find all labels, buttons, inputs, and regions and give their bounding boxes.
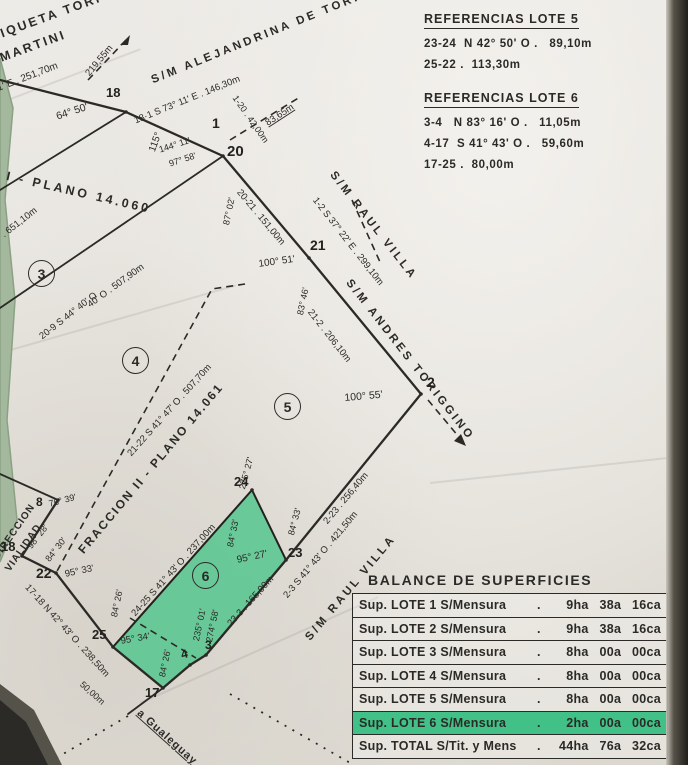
- row-value: 8ha 00a 00ca: [551, 669, 661, 683]
- balance-title: BALANCE DE SUPERFICIES: [368, 572, 668, 588]
- reference-row: 17-25 . 80,00m: [424, 159, 674, 171]
- table-row-total: Sup. TOTAL S/Tit. y Mens.44ha 76a 32ca: [353, 735, 667, 758]
- lot3-number: 3: [28, 260, 55, 287]
- lot6-number: 6: [192, 562, 219, 589]
- lot4-number-text: 4: [132, 353, 140, 369]
- row-value: 9ha 38a 16ca: [551, 622, 661, 636]
- reference-row: 23-24 N 42° 50' O . 89,10m: [424, 38, 674, 50]
- point-25: 25: [92, 628, 106, 641]
- row-dot: .: [537, 692, 551, 706]
- photo-edge-shadow: [666, 0, 688, 765]
- point-23: 23: [288, 546, 302, 559]
- references-lote6-title: REFERENCIAS LOTE 6: [424, 91, 579, 108]
- reference-row: 4-17 S 41° 43' O . 59,60m: [424, 138, 674, 150]
- row-dot: .: [537, 716, 551, 730]
- point-20: 20: [227, 144, 244, 159]
- reference-row: 3-4 N 83° 16' O . 11,05m: [424, 117, 674, 129]
- row-label: Sup. LOTE 2 S/Mensura: [359, 622, 537, 636]
- lot4-number: 4: [122, 347, 149, 374]
- row-dot: .: [537, 622, 551, 636]
- point-17: 17: [145, 686, 159, 699]
- table-row-lote6-highlighted: Sup. LOTE 6 S/Mensura.2ha 00a 00ca: [353, 712, 667, 736]
- row-value: 8ha 00a 00ca: [551, 692, 661, 706]
- lot3-number-text: 3: [38, 266, 46, 282]
- point-3: 3: [205, 639, 212, 651]
- point-18: 18: [106, 86, 120, 99]
- row-value: 44ha 76a 32ca: [551, 739, 661, 753]
- point-1: 1: [212, 116, 220, 130]
- row-label: Sup. LOTE 6 S/Mensura: [359, 716, 537, 730]
- row-label: Sup. LOTE 5 S/Mensura: [359, 692, 537, 706]
- row-dot: .: [537, 598, 551, 612]
- references-lote5-title: REFERENCIAS LOTE 5: [424, 12, 579, 29]
- point-18-south: 18: [1, 540, 15, 553]
- row-label: Sup. LOTE 1 S/Mensura: [359, 598, 537, 612]
- balance-box: Sup. LOTE 1 S/Mensura.9ha 38a 16ca Sup. …: [352, 593, 668, 759]
- row-dot: .: [537, 645, 551, 659]
- row-label: Sup. TOTAL S/Tit. y Mens: [359, 739, 537, 753]
- table-row: Sup. LOTE 2 S/Mensura.9ha 38a 16ca: [353, 618, 667, 642]
- table-row: Sup. LOTE 1 S/Mensura.9ha 38a 16ca: [353, 594, 667, 618]
- lot5-number: 5: [274, 393, 301, 420]
- table-row: Sup. LOTE 3 S/Mensura.8ha 00a 00ca: [353, 641, 667, 665]
- point-21: 21: [310, 238, 326, 252]
- reference-row: 25-22 . 113,30m: [424, 59, 674, 71]
- point-8: 8: [36, 496, 43, 508]
- point-2: 2: [427, 375, 435, 389]
- balance-table: BALANCE DE SUPERFICIES Sup. LOTE 1 S/Men…: [352, 572, 668, 759]
- row-value: 9ha 38a 16ca: [551, 598, 661, 612]
- row-dot: .: [537, 669, 551, 683]
- point-24: 24: [234, 475, 248, 488]
- references-block: REFERENCIAS LOTE 5 23-24 N 42° 50' O . 8…: [424, 10, 674, 171]
- lot6-number-text: 6: [202, 568, 210, 584]
- scanned-survey-plan: RIQUETA TORIGGINO EMARTINI S 73° 11' E .…: [0, 0, 688, 765]
- row-label: Sup. LOTE 4 S/Mensura: [359, 669, 537, 683]
- north-tie-arrow: [120, 35, 130, 45]
- table-row: Sup. LOTE 5 S/Mensura.8ha 00a 00ca: [353, 688, 667, 712]
- row-value: 2ha 00a 00ca: [551, 716, 661, 730]
- point-22: 22: [36, 566, 52, 580]
- row-label: Sup. LOTE 3 S/Mensura: [359, 645, 537, 659]
- row-dot: .: [537, 739, 551, 753]
- torn-left-edge: [0, 58, 17, 562]
- row-value: 8ha 00a 00ca: [551, 645, 661, 659]
- lot5-number-text: 5: [284, 399, 292, 415]
- table-row: Sup. LOTE 4 S/Mensura.8ha 00a 00ca: [353, 665, 667, 689]
